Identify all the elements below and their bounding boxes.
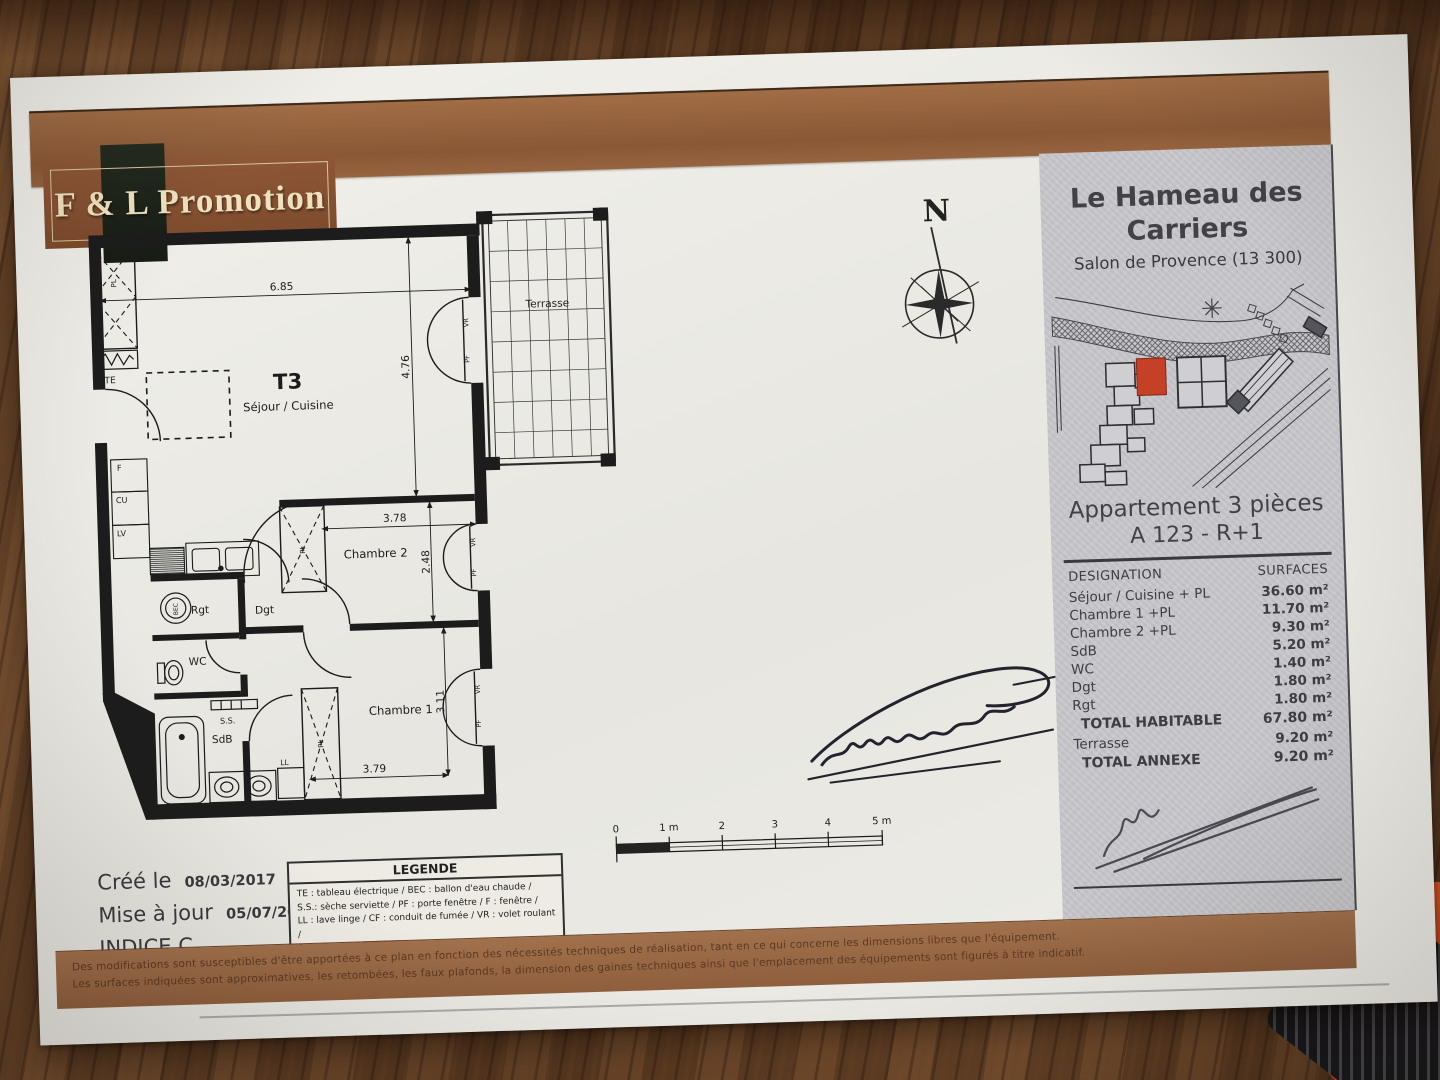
compass-rose: N bbox=[864, 187, 1009, 356]
fixture-ss-label: S.S. bbox=[220, 716, 236, 725]
row-value: 36.60 m² bbox=[1261, 580, 1329, 600]
scale-tick-4: 4 bbox=[824, 818, 831, 829]
room-wc-label: WC bbox=[188, 656, 206, 669]
row-label: Dgt bbox=[1071, 678, 1096, 697]
project-info-panel: Le Hameau des Carriers Salon de Provence… bbox=[1039, 144, 1357, 919]
row-value: 11.70 m² bbox=[1262, 598, 1330, 618]
row-value: 1.80 m² bbox=[1273, 670, 1332, 690]
room-dgt-label: Dgt bbox=[255, 604, 274, 617]
row-label: Rgt bbox=[1072, 696, 1096, 715]
row-value: 67.80 m² bbox=[1263, 706, 1334, 729]
col-designation: DESIGNATION bbox=[1068, 567, 1163, 585]
room-rgt-label: Rgt bbox=[191, 604, 210, 617]
scale-bar: 0 1 m 2 3 4 5 m bbox=[603, 805, 900, 874]
dim-ch2-height: 2.48 bbox=[420, 550, 433, 574]
scale-tick-1: 1 m bbox=[659, 822, 679, 834]
window-vr-label-2: VR bbox=[469, 537, 477, 547]
scale-tick-2: 2 bbox=[719, 821, 726, 832]
row-label: SdB bbox=[1070, 642, 1097, 661]
site-star-symbol bbox=[1202, 298, 1222, 318]
col-surfaces: SURFACES bbox=[1257, 561, 1328, 578]
dim-sejour-width: 6.85 bbox=[270, 281, 294, 294]
signature-pencil bbox=[1079, 768, 1332, 876]
row-value: 1.80 m² bbox=[1274, 688, 1333, 708]
floor-plan-drawing: T3 Séjour / Cuisine Chambre 2 Chambre 1 … bbox=[83, 207, 643, 854]
dim-ch1-height: 3.11 bbox=[435, 690, 448, 714]
site-highlighted-unit bbox=[1136, 357, 1166, 395]
row-label: Chambre 2 +PL bbox=[1070, 621, 1176, 642]
row-value: 1.40 m² bbox=[1273, 652, 1332, 672]
window-pf-label-3: PF bbox=[475, 719, 483, 727]
paper-sheet: F & L Promotion bbox=[10, 34, 1438, 1045]
window-vr-label-3: VR bbox=[474, 684, 482, 694]
photo-of-floor-plan-document: F & L Promotion bbox=[0, 0, 1440, 1080]
fixture-f-label: F bbox=[117, 464, 122, 473]
project-location: Salon de Provence (13 300) bbox=[1042, 246, 1334, 274]
scale-tick-3: 3 bbox=[771, 819, 778, 830]
fixture-lv-label: LV bbox=[117, 529, 127, 538]
row-label: WC bbox=[1071, 660, 1094, 679]
updated-line: Mise à jour 05/07/2017 bbox=[98, 898, 289, 928]
scale-tick-0: 0 bbox=[613, 824, 620, 835]
fixture-bec-label: BEC bbox=[173, 603, 180, 615]
updated-label: Mise à jour bbox=[98, 900, 213, 928]
door-swings bbox=[103, 297, 483, 757]
row-value: 9.20 m² bbox=[1275, 727, 1334, 747]
fixture-ll-label: LL bbox=[280, 758, 289, 767]
row-value: 5.20 m² bbox=[1272, 634, 1331, 654]
window-pf-label-2: PF bbox=[470, 568, 478, 576]
room-chambre1-label: Chambre 1 bbox=[369, 702, 433, 718]
row-value: 9.30 m² bbox=[1272, 616, 1331, 636]
row-label: Terrasse bbox=[1073, 734, 1129, 754]
signature-ink bbox=[801, 653, 1070, 796]
site-plan-map bbox=[1049, 275, 1336, 496]
fixture-pl2-label: PL bbox=[298, 545, 307, 554]
surfaces-table: DESIGNATION SURFACES Séjour / Cuisine + … bbox=[1068, 561, 1334, 774]
created-label: Créé le bbox=[97, 868, 172, 894]
divider-line-bottom bbox=[1074, 878, 1342, 888]
dim-sejour-height: 4.76 bbox=[400, 355, 413, 379]
dim-ch1-width: 3.79 bbox=[362, 763, 386, 776]
dim-ch2-width: 3.78 bbox=[383, 512, 407, 525]
created-date: 08/03/2017 bbox=[184, 872, 276, 891]
row-label: TOTAL ANNEXE bbox=[1074, 749, 1201, 774]
created-line: Créé le 08/03/2017 bbox=[97, 865, 288, 895]
fixture-te-label: TE bbox=[103, 376, 116, 386]
project-title: Le Hameau des Carriers bbox=[1040, 175, 1334, 252]
room-sejour-label: Séjour / Cuisine bbox=[243, 398, 334, 415]
unit-type-label: T3 bbox=[273, 368, 303, 394]
scale-tick-5: 5 m bbox=[872, 816, 892, 828]
fixture-cu-label: CU bbox=[116, 496, 128, 505]
room-terrasse-label: Terrasse bbox=[524, 297, 569, 310]
fixture-pl3-label: PL bbox=[316, 739, 325, 748]
window-pf-label-1: PF bbox=[463, 355, 471, 363]
room-sdb-label: SdB bbox=[212, 733, 233, 746]
row-value: 9.20 m² bbox=[1274, 745, 1335, 768]
compass-north-label: N bbox=[922, 194, 951, 230]
terrace bbox=[476, 207, 616, 470]
kitchen-fixtures bbox=[111, 455, 260, 579]
room-chambre2-label: Chambre 2 bbox=[344, 545, 408, 561]
divider-line bbox=[1064, 551, 1332, 562]
window-vr-label-1: VR bbox=[462, 318, 470, 328]
fixture-pl1-label: PL bbox=[109, 279, 118, 288]
